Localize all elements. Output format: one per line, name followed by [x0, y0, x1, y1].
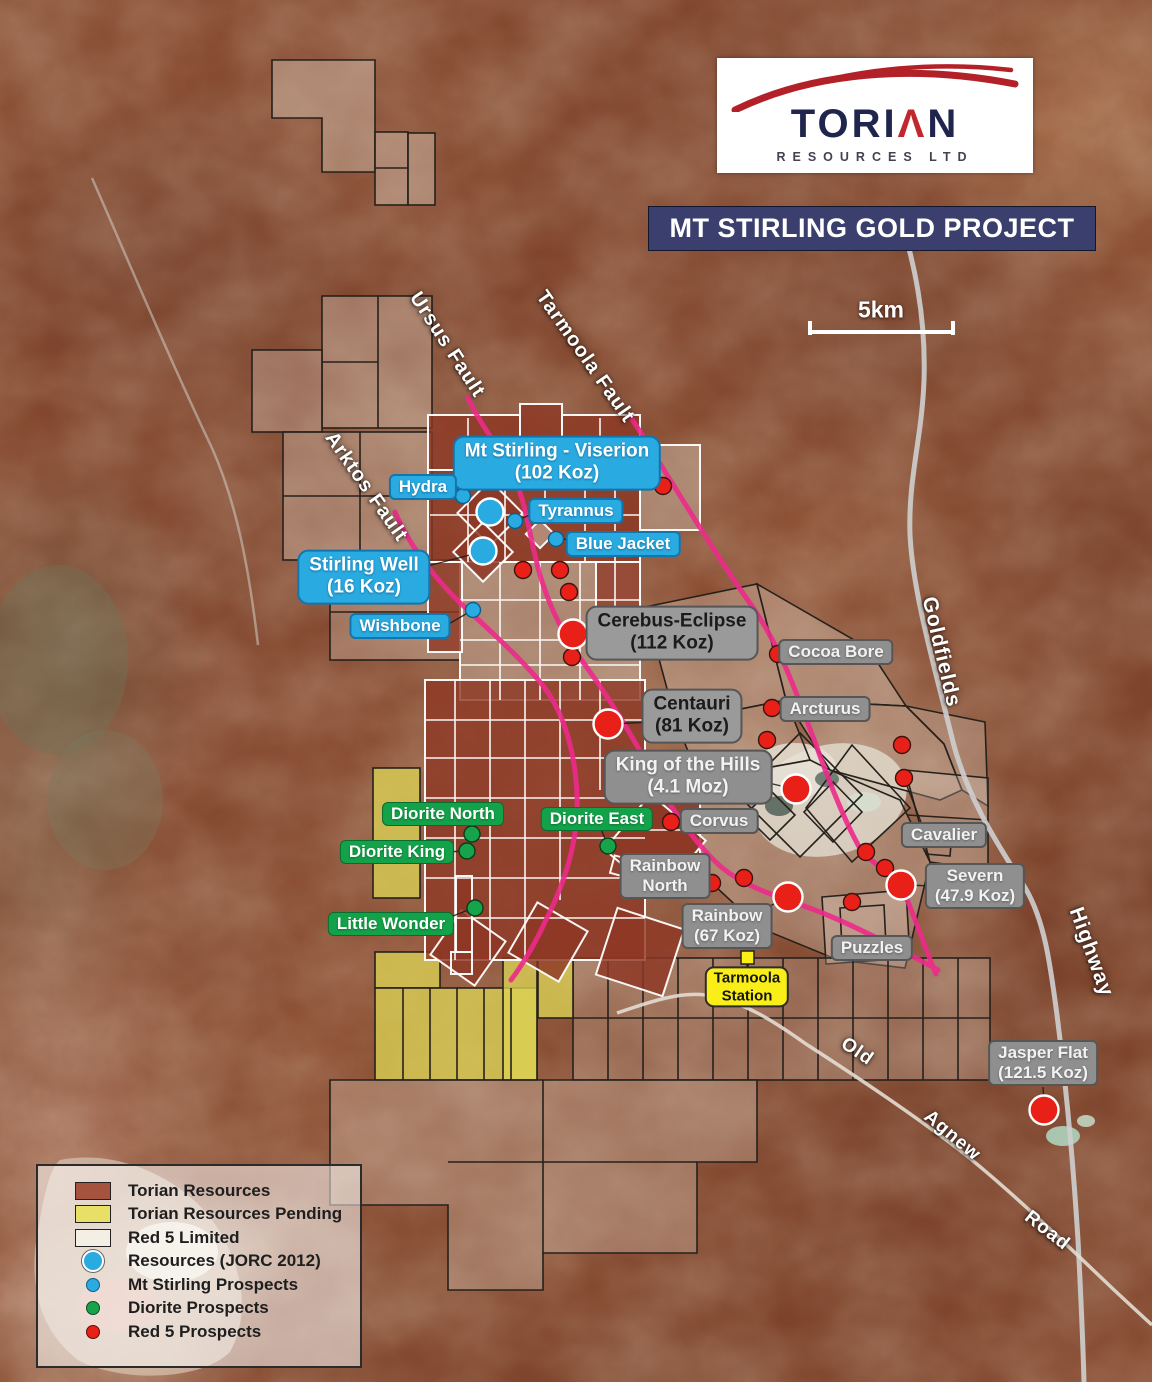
torian-logo: TORIΛN RESOURCES LTD [717, 58, 1033, 173]
scale-bar-label: 5km [858, 297, 904, 324]
legend-row-resources: Resources (JORC 2012) [64, 1250, 360, 1274]
legend-row-mt-stirling-prospects: Mt Stirling Prospects [64, 1273, 360, 1297]
red5-prospect-dot [844, 894, 861, 911]
map-canvas: TORIΛN RESOURCES LTD MT STIRLING GOLD PR… [0, 0, 1152, 1382]
diorite-prospect-dot [600, 838, 616, 854]
label-centauri: Centauri (81 Koz) [641, 689, 742, 744]
diorite-prospect-dot [467, 900, 483, 916]
label-arcturus: Arcturus [780, 696, 871, 722]
legend-swatch-jorc-resource-icon [82, 1250, 104, 1272]
label-cerebus-eclipse: Cerebus-Eclipse (112 Koz) [586, 606, 759, 661]
red5-prospect-dot [894, 737, 911, 754]
label-mt-stirling-viserion: Mt Stirling - Viserion (102 Koz) [453, 436, 661, 491]
jasper-flat-lake [1077, 1115, 1095, 1127]
red5-prospect-dot [515, 562, 532, 579]
legend-swatch-torian [75, 1182, 111, 1200]
red5-prospect-dot [759, 732, 776, 749]
label-diorite-north: Diorite North [382, 802, 504, 826]
legend-swatch-blue-prospect-icon [86, 1278, 100, 1292]
label-wishbone: Wishbone [349, 613, 450, 639]
legend-swatch-red5 [75, 1229, 111, 1247]
label-diorite-king: Diorite King [340, 840, 454, 864]
red5-resource-dot [774, 883, 803, 912]
label-cocoa-bore: Cocoa Bore [778, 639, 893, 665]
red5-prospect-dot [764, 700, 781, 717]
logo-subtitle: RESOURCES LTD [717, 150, 1033, 164]
legend-row-pending: Torian Resources Pending [64, 1203, 360, 1227]
label-tarmoola-station: Tarmoola Station [705, 966, 789, 1007]
tenement-pending [503, 958, 537, 1080]
label-puzzles: Puzzles [831, 935, 913, 961]
logo-brand-text: TORIΛN [717, 104, 1033, 144]
label-king-of-the-hills: King of the Hills (4.1 Moz) [604, 750, 773, 805]
label-tyrannus: Tyrannus [528, 498, 623, 524]
red5-resource-dot [887, 871, 916, 900]
label-rainbow: Rainbow (67 Koz) [682, 903, 773, 949]
mt-stirling-prospect-dot [549, 532, 564, 547]
label-rainbow-north: Rainbow North [620, 853, 711, 899]
red5-prospect-dot [561, 584, 578, 601]
red5-prospect-dot [663, 814, 680, 831]
legend-swatch-pending [75, 1205, 111, 1223]
red5-resource-dot [782, 775, 811, 804]
label-cavalier: Cavalier [901, 822, 987, 848]
label-blue-jacket: Blue Jacket [566, 531, 681, 557]
legend-row-red5: Red 5 Limited [64, 1226, 360, 1250]
tenement-torian [596, 562, 640, 612]
red5-prospect-dot [896, 770, 913, 787]
jorc-resource-dot [477, 499, 504, 526]
jasper-flat-lake [1046, 1126, 1080, 1146]
red5-prospect-dot [858, 844, 875, 861]
label-little-wonder: Little Wonder [328, 912, 454, 936]
project-title-banner: MT STIRLING GOLD PROJECT [648, 206, 1096, 251]
label-hydra: Hydra [389, 474, 457, 500]
tenement-red5 [252, 350, 322, 432]
legend-swatch-red-prospect-icon [86, 1325, 100, 1339]
vegetation-patch [47, 730, 163, 870]
label-corvus: Corvus [680, 808, 759, 834]
label-severn: Severn (47.9 Koz) [925, 863, 1025, 909]
diorite-prospect-dot [459, 843, 475, 859]
red5-prospect-dot [564, 649, 581, 666]
label-jasper-flat: Jasper Flat (121.5 Koz) [988, 1040, 1098, 1086]
red5-prospect-dot [736, 870, 753, 887]
label-diorite-east: Diorite East [541, 807, 653, 831]
legend-row-torian: Torian Resources [64, 1179, 360, 1203]
label-stirling-well: Stirling Well (16 Koz) [297, 550, 430, 605]
tarmoola-station-marker [741, 951, 754, 964]
legend-row-diorite-prospects: Diorite Prospects [64, 1297, 360, 1321]
red5-prospect-dot [552, 562, 569, 579]
tenement-pending [373, 768, 420, 898]
jorc-resource-dot [470, 538, 497, 565]
tenement-red5 [408, 133, 435, 205]
diorite-prospect-dot [464, 826, 480, 842]
legend-row-red5-prospects: Red 5 Prospects [64, 1320, 360, 1344]
legend: Torian Resources Torian Resources Pendin… [36, 1164, 362, 1368]
mt-stirling-prospect-dot [508, 514, 523, 529]
red5-resource-dot [1030, 1096, 1059, 1125]
legend-swatch-green-prospect-icon [86, 1301, 100, 1315]
mt-stirling-prospect-dot [456, 489, 471, 504]
red5-resource-dot [559, 620, 588, 649]
red5-resource-dot [594, 710, 623, 739]
mt-stirling-prospect-dot [466, 603, 481, 618]
